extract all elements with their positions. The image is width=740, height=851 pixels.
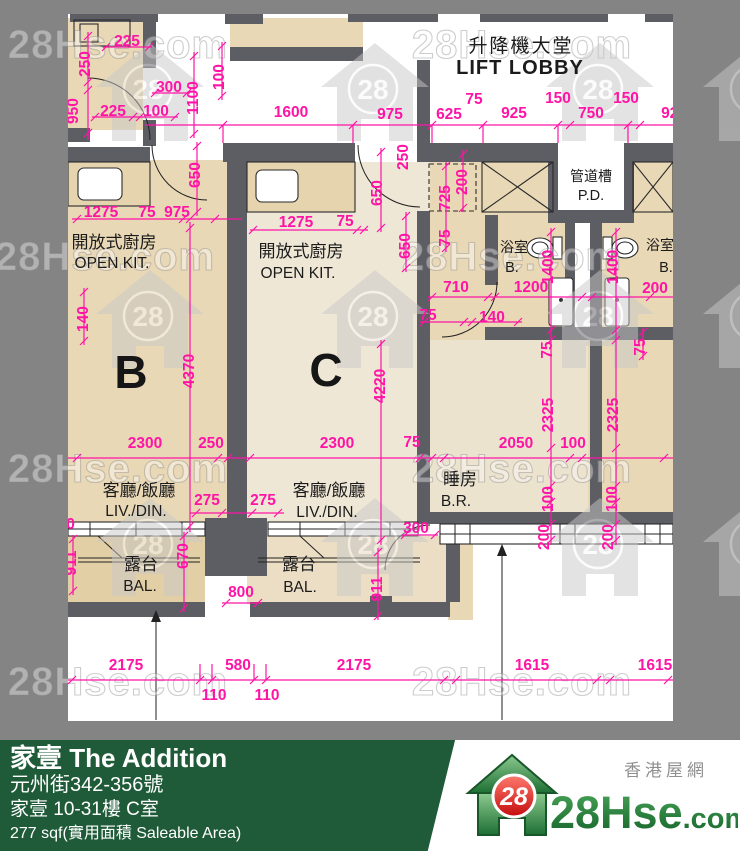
dimension-label: 911 xyxy=(369,576,386,601)
dimension-label: 1615 xyxy=(638,657,673,674)
dimension-label: 650 xyxy=(397,233,414,259)
dimension-label: 925 xyxy=(501,105,527,122)
dimension-label: 75 xyxy=(403,434,421,451)
dimension-label: 750 xyxy=(578,105,604,122)
dimension-label: 75 xyxy=(465,91,483,108)
dimension-label: 2325 xyxy=(605,397,622,432)
dimension-label: 975 xyxy=(377,106,403,123)
room-label: B. xyxy=(505,260,519,276)
dimension-label: 1400 xyxy=(605,250,622,284)
logo-tagline: 香港屋網 xyxy=(624,761,708,780)
dimension-label: 710 xyxy=(443,279,469,296)
dimension-label: 225 xyxy=(114,33,140,50)
dimension-label: 275 xyxy=(194,492,220,509)
dimension-label: 4370 xyxy=(181,354,198,388)
room-label: LIV./DIN. xyxy=(105,503,166,520)
dimension-label: 100 xyxy=(540,486,557,512)
room-label: 管道槽 xyxy=(570,168,612,184)
dimension-label: 140 xyxy=(479,309,505,326)
dimension-label: 1275 xyxy=(84,204,119,221)
dimension-label: 200 xyxy=(536,524,553,550)
svg-text:28: 28 xyxy=(357,529,388,560)
room-label: 睡房 xyxy=(443,470,477,489)
dimension-label: 100 xyxy=(604,486,621,512)
svg-text:28: 28 xyxy=(357,301,388,332)
listing-floorplan-image: 28Hse.com28Hse.com28Hse.com28Hse.com28Hs… xyxy=(0,0,740,851)
footer-bar: 家壹 The Addition 元州街342-356號 家壹 10-31樓 C室… xyxy=(0,740,740,851)
dimension-label: 2300 xyxy=(320,435,354,452)
room-label: P.D. xyxy=(578,188,604,204)
dimension-label: 975 xyxy=(164,204,190,221)
dimension-label: 725 xyxy=(437,185,454,211)
room-label: LIV./DIN. xyxy=(296,504,357,521)
room-label: 客廳/飯廳 xyxy=(103,481,176,500)
dimension-label: 250 xyxy=(77,51,94,77)
dimension-label: 75 xyxy=(138,204,156,221)
dimension-label: 200 xyxy=(454,169,471,195)
dimension-label: 225 xyxy=(100,103,126,120)
dimension-label: 250 xyxy=(198,435,224,452)
room-label: B. xyxy=(659,260,673,276)
room-label: 客廳/飯廳 xyxy=(293,481,366,500)
room-label: B.R. xyxy=(441,493,471,510)
dimension-label: 250 xyxy=(395,144,412,170)
sink-c xyxy=(256,170,298,202)
dimension-label: 1400 xyxy=(540,250,557,284)
room-label: 開放式廚房 xyxy=(72,232,157,252)
balcony-pillar xyxy=(205,518,267,576)
dimension-label: 75 xyxy=(336,213,354,230)
dimension-label: 650 xyxy=(369,180,386,206)
dimension-label: 2050 xyxy=(499,435,533,452)
dimension-label: 100 xyxy=(560,435,586,452)
dimension-label: 150 xyxy=(545,90,571,107)
room-label: B xyxy=(114,346,147,398)
dimension-label: 100 xyxy=(143,103,169,120)
floor-plan: 28Hse.com28Hse.com28Hse.com28Hse.com28Hs… xyxy=(0,0,740,740)
logo-site-name: 28Hse.com xyxy=(550,787,738,838)
dimension-label: 1615 xyxy=(515,657,550,674)
room-label: 升降機大堂 xyxy=(468,35,573,57)
dimension-label: 1275 xyxy=(279,214,314,231)
dimension-label: 140 xyxy=(75,306,92,332)
room-label: 露台 xyxy=(282,555,316,574)
room-label: OPEN KIT. xyxy=(75,255,150,272)
svg-text:28: 28 xyxy=(582,301,613,332)
dimension-label: 75 xyxy=(419,307,437,324)
room-label: BAL. xyxy=(283,579,317,596)
room-label: C xyxy=(309,344,342,396)
dimension-label: 150 xyxy=(613,90,639,107)
dimension-label: 2175 xyxy=(109,657,144,674)
dimension-label: 200 xyxy=(600,524,617,550)
dimension-label: 200 xyxy=(642,280,668,297)
room-label: LIFT LOBBY xyxy=(456,57,584,79)
room-label: 浴室 xyxy=(500,239,528,255)
dimension-label: 2175 xyxy=(337,657,372,674)
dimension-label: 625 xyxy=(436,106,462,123)
dimension-label: 670 xyxy=(175,543,192,569)
dimension-label: 580 xyxy=(225,657,251,674)
dimension-label: 2325 xyxy=(540,397,557,432)
logo-house-icon: 28 xyxy=(468,755,556,835)
svg-text:28: 28 xyxy=(582,74,613,105)
svg-text:28: 28 xyxy=(132,301,163,332)
dimension-label: 1600 xyxy=(274,104,308,121)
dimension-label: 2300 xyxy=(128,435,162,452)
brand-logo: 28 28Hse.com 香港屋網 xyxy=(458,746,738,846)
dimension-label: 1100 xyxy=(185,81,202,115)
room-label: 浴室 xyxy=(646,237,674,253)
dimension-label: 100 xyxy=(211,64,228,90)
dimension-label: 75 xyxy=(539,341,556,359)
dimension-label: 4220 xyxy=(372,369,389,403)
logo-badge-number: 28 xyxy=(499,783,528,811)
dimension-label: 110 xyxy=(201,687,226,704)
room-label: BAL. xyxy=(123,578,157,595)
dimension-label: 110 xyxy=(254,687,279,704)
sink-b xyxy=(78,168,122,200)
room-label: OPEN KIT. xyxy=(261,265,336,282)
dimension-label: 75 xyxy=(632,338,649,356)
svg-text:28: 28 xyxy=(357,74,388,105)
room-label: 開放式廚房 xyxy=(259,241,344,261)
dimension-label: 300 xyxy=(403,520,429,537)
room-label: 露台 xyxy=(124,555,158,574)
dimension-label: 800 xyxy=(228,584,254,601)
dimension-label: 75 xyxy=(437,229,454,247)
dimension-label: 275 xyxy=(250,492,276,509)
dimension-label: 300 xyxy=(156,79,182,96)
dimension-label: 650 xyxy=(187,162,204,188)
